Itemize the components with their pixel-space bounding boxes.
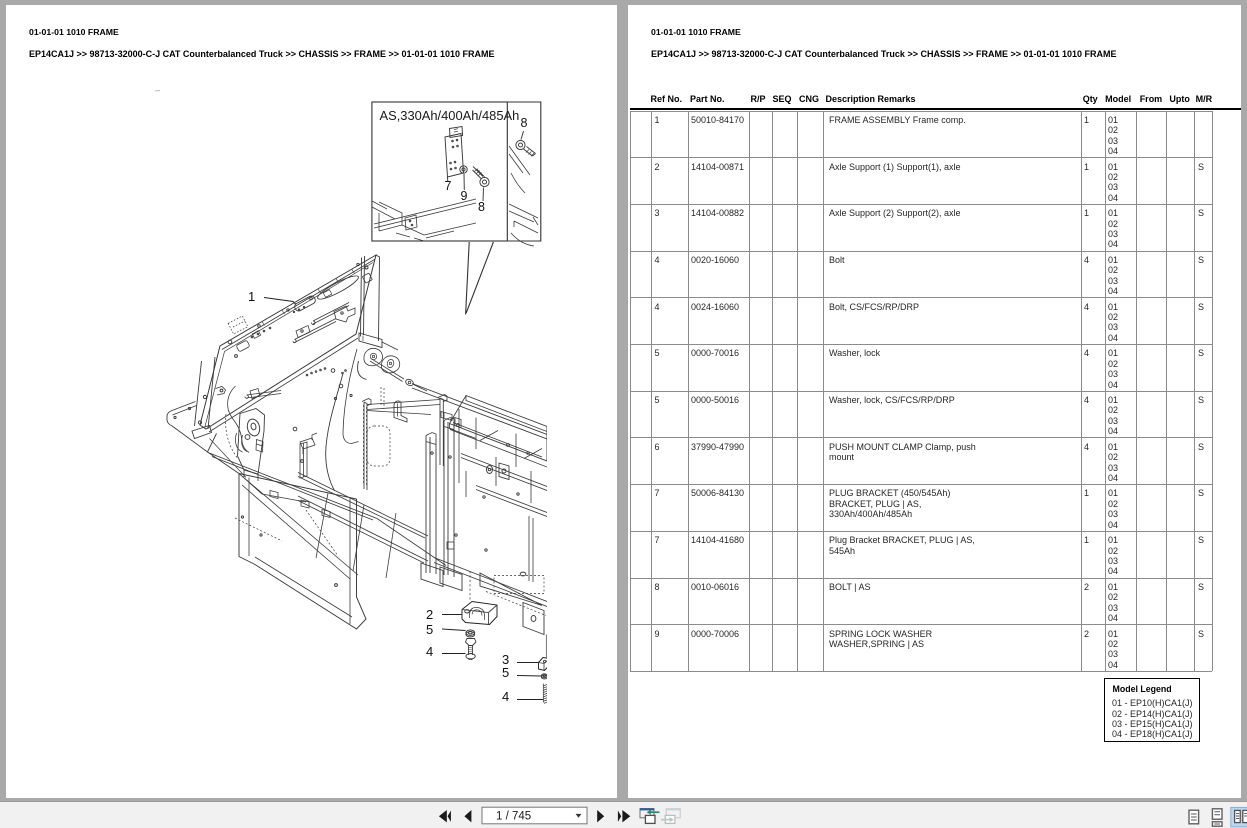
- svg-text:1 / 745: 1 / 745: [496, 811, 531, 823]
